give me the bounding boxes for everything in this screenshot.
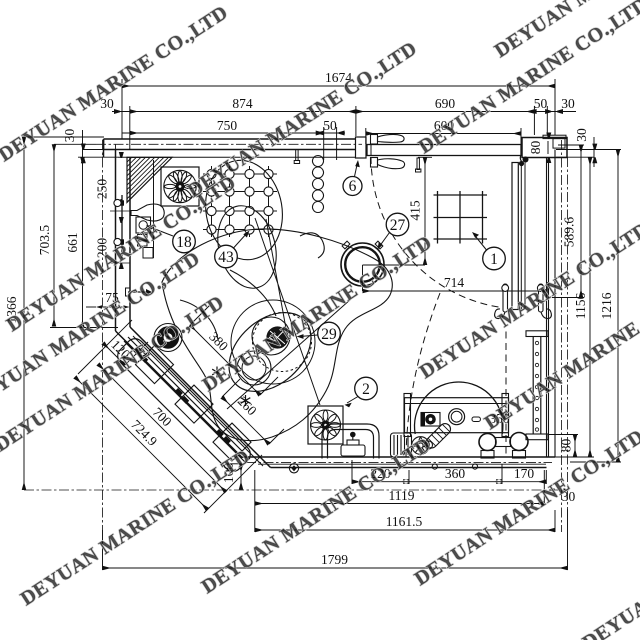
svg-text:29: 29 xyxy=(321,326,337,343)
svg-text:80: 80 xyxy=(559,439,574,453)
svg-text:690: 690 xyxy=(435,96,456,111)
svg-text:2: 2 xyxy=(362,381,370,398)
svg-text:27: 27 xyxy=(390,217,406,234)
svg-text:1161.5: 1161.5 xyxy=(386,514,423,529)
svg-text:1216: 1216 xyxy=(599,292,614,319)
svg-text:30: 30 xyxy=(574,128,589,142)
svg-text:6: 6 xyxy=(349,178,357,195)
svg-text:750: 750 xyxy=(217,118,238,133)
svg-text:50: 50 xyxy=(534,96,548,111)
svg-text:661: 661 xyxy=(65,232,80,252)
svg-text:43: 43 xyxy=(218,249,234,266)
svg-text:80: 80 xyxy=(528,141,543,155)
svg-text:1119: 1119 xyxy=(389,488,415,503)
svg-text:1156: 1156 xyxy=(573,293,588,320)
svg-text:714: 714 xyxy=(444,275,465,290)
svg-text:589.6: 589.6 xyxy=(562,217,577,248)
svg-text:874: 874 xyxy=(232,96,253,111)
svg-text:1799: 1799 xyxy=(321,552,348,567)
svg-text:703.5: 703.5 xyxy=(37,225,52,256)
svg-text:30: 30 xyxy=(561,96,575,111)
svg-text:50: 50 xyxy=(323,118,337,133)
svg-text:170: 170 xyxy=(514,466,535,481)
svg-text:250: 250 xyxy=(95,179,110,200)
svg-text:1: 1 xyxy=(490,251,498,268)
svg-text:30: 30 xyxy=(62,129,77,143)
svg-text:415: 415 xyxy=(408,200,423,221)
svg-text:360: 360 xyxy=(445,466,466,481)
